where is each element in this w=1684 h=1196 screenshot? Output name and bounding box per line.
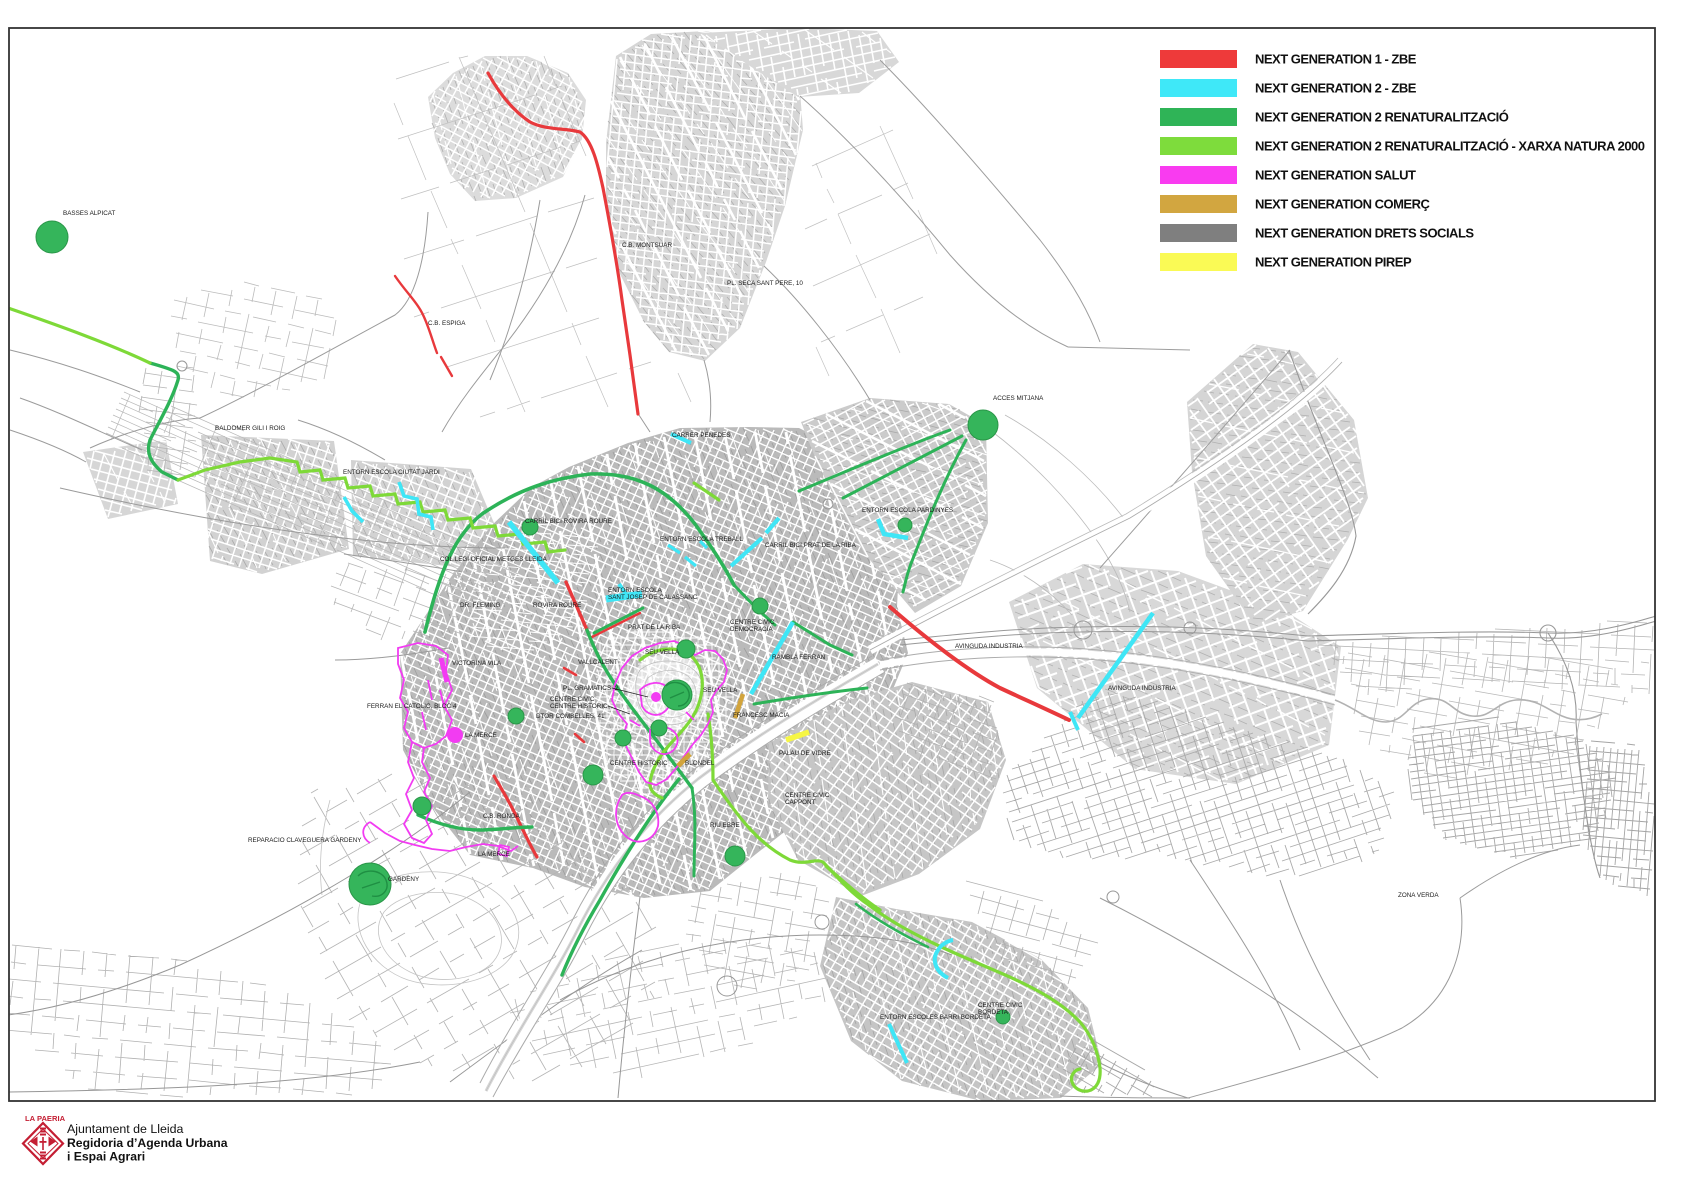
- svg-text:BORDETA: BORDETA: [978, 1009, 1009, 1016]
- svg-text:NEXT GENERATION 1 - ZBE: NEXT GENERATION 1 - ZBE: [1255, 52, 1417, 67]
- svg-text:GARDENY: GARDENY: [388, 876, 420, 883]
- svg-text:DR. FLEMING: DR. FLEMING: [460, 602, 501, 609]
- svg-text:CARRER PENEDES: CARRER PENEDES: [672, 432, 730, 439]
- svg-text:SEU VELLA: SEU VELLA: [703, 687, 738, 694]
- svg-text:PRAT DE LA RIBA: PRAT DE LA RIBA: [628, 624, 681, 631]
- svg-text:DTOR COMBELLES, 41: DTOR COMBELLES, 41: [536, 713, 605, 720]
- svg-text:VALLCALENT: VALLCALENT: [578, 659, 618, 666]
- svg-text:CENTRE CIVIC: CENTRE CIVIC: [785, 792, 830, 799]
- svg-text:NEXT GENERATION DRETS SOCIALS: NEXT GENERATION DRETS SOCIALS: [1255, 226, 1474, 241]
- svg-text:ROVIRA ROURE: ROVIRA ROURE: [533, 602, 581, 609]
- svg-text:CAPPONT: CAPPONT: [785, 799, 816, 806]
- svg-text:FERRAN EL CATOLIC, BLOC 4: FERRAN EL CATOLIC, BLOC 4: [367, 703, 457, 710]
- svg-text:NEXT GENERATION 2 RENATURALITZ: NEXT GENERATION 2 RENATURALITZACIÓ - XAR…: [1255, 139, 1645, 154]
- svg-text:CENTRE CIVIC: CENTRE CIVIC: [550, 696, 595, 703]
- svg-text:CARRIL BICI ROVIRA ROURE: CARRIL BICI ROVIRA ROURE: [525, 518, 612, 525]
- svg-text:CENTRE HISTORIC: CENTRE HISTORIC: [550, 703, 608, 710]
- svg-text:SEU VELLA: SEU VELLA: [645, 649, 680, 656]
- svg-text:SANT JOSEP DE CALASSANC: SANT JOSEP DE CALASSANC: [608, 594, 698, 601]
- svg-text:ENTORN ESCOLES BARRI BORDETA: ENTORN ESCOLES BARRI BORDETA: [880, 1014, 991, 1021]
- svg-text:C.B. ESPIGA: C.B. ESPIGA: [428, 320, 466, 327]
- svg-text:DEMOCRACIA: DEMOCRACIA: [730, 626, 773, 633]
- svg-text:Regidoria d’Agenda Urbana: Regidoria d’Agenda Urbana: [67, 1136, 228, 1150]
- svg-text:AVINGUDA INDUSTRIA: AVINGUDA INDUSTRIA: [955, 643, 1024, 650]
- svg-text:BALDOMER GILI I ROIG: BALDOMER GILI I ROIG: [215, 425, 285, 432]
- svg-text:LA MERCE: LA MERCE: [465, 732, 497, 739]
- svg-text:VICTORINA VILA: VICTORINA VILA: [452, 660, 502, 667]
- svg-text:CENTRE CIVIC: CENTRE CIVIC: [730, 619, 775, 626]
- svg-text:CENTRE CIVIC: CENTRE CIVIC: [978, 1002, 1023, 1009]
- svg-text:CARRIL BICI PRAT DE LA RIBA: CARRIL BICI PRAT DE LA RIBA: [765, 542, 857, 549]
- svg-text:CENTRE HISTORIC: CENTRE HISTORIC: [610, 760, 668, 767]
- svg-text:BASSES ALPICAT: BASSES ALPICAT: [63, 210, 116, 217]
- svg-text:LA MERCE: LA MERCE: [478, 851, 510, 858]
- svg-text:NEXT GENERATION PIREP: NEXT GENERATION PIREP: [1255, 255, 1412, 270]
- svg-text:LA PAERIA: LA PAERIA: [25, 1114, 66, 1123]
- svg-text:NEXT GENERATION 2 RENATURALITZ: NEXT GENERATION 2 RENATURALITZACIÓ: [1255, 110, 1509, 125]
- svg-text:ENTORN ESCOLA PARDINYES: ENTORN ESCOLA PARDINYES: [862, 507, 953, 514]
- svg-text:FRANCESC MACIA: FRANCESC MACIA: [733, 712, 790, 719]
- svg-text:PL. GRAMATICS, 2: PL. GRAMATICS, 2: [563, 685, 619, 692]
- svg-text:NEXT GENERATION 2 - ZBE: NEXT GENERATION 2 - ZBE: [1255, 81, 1417, 96]
- svg-text:PL. SECA SANT PERE, 10: PL. SECA SANT PERE, 10: [727, 280, 803, 287]
- svg-text:C.B. MONTSUAR: C.B. MONTSUAR: [622, 242, 672, 249]
- svg-text:NEXT GENERATION SALUT: NEXT GENERATION SALUT: [1255, 168, 1416, 183]
- svg-text:ACCES MITJANA: ACCES MITJANA: [993, 395, 1044, 402]
- svg-text:ENTORN ESCOLA CIUTAT JARDI: ENTORN ESCOLA CIUTAT JARDI: [343, 469, 440, 476]
- svg-text:RAMBLA FERRAN: RAMBLA FERRAN: [772, 654, 826, 661]
- svg-text:COL.LEGI OFICIAL METGES LLEIDA: COL.LEGI OFICIAL METGES LLEIDA: [440, 556, 548, 563]
- svg-text:ZONA VERDA: ZONA VERDA: [1398, 892, 1439, 899]
- svg-text:ENTORN ESCOLA TREBALL: ENTORN ESCOLA TREBALL: [660, 536, 744, 543]
- svg-text:AVINGUDA INDUSTRIA: AVINGUDA INDUSTRIA: [1108, 685, 1177, 692]
- svg-text:REPARACIO CLAVEGUERA GARDENY: REPARACIO CLAVEGUERA GARDENY: [248, 837, 362, 844]
- svg-text:BLONDEL: BLONDEL: [685, 760, 715, 767]
- svg-text:Ajuntament de Lleida: Ajuntament de Lleida: [67, 1122, 184, 1136]
- svg-text:RIU EBRE: RIU EBRE: [710, 822, 740, 829]
- svg-text:NEXT GENERATION COMERÇ: NEXT GENERATION COMERÇ: [1255, 197, 1430, 212]
- svg-text:C.B. RONDA: C.B. RONDA: [483, 813, 521, 820]
- svg-text:i Espai Agrari: i Espai Agrari: [67, 1150, 145, 1164]
- svg-text:PALAU DE VIDRE: PALAU DE VIDRE: [779, 750, 831, 757]
- svg-text:ENTORN ESCOLA: ENTORN ESCOLA: [608, 587, 663, 594]
